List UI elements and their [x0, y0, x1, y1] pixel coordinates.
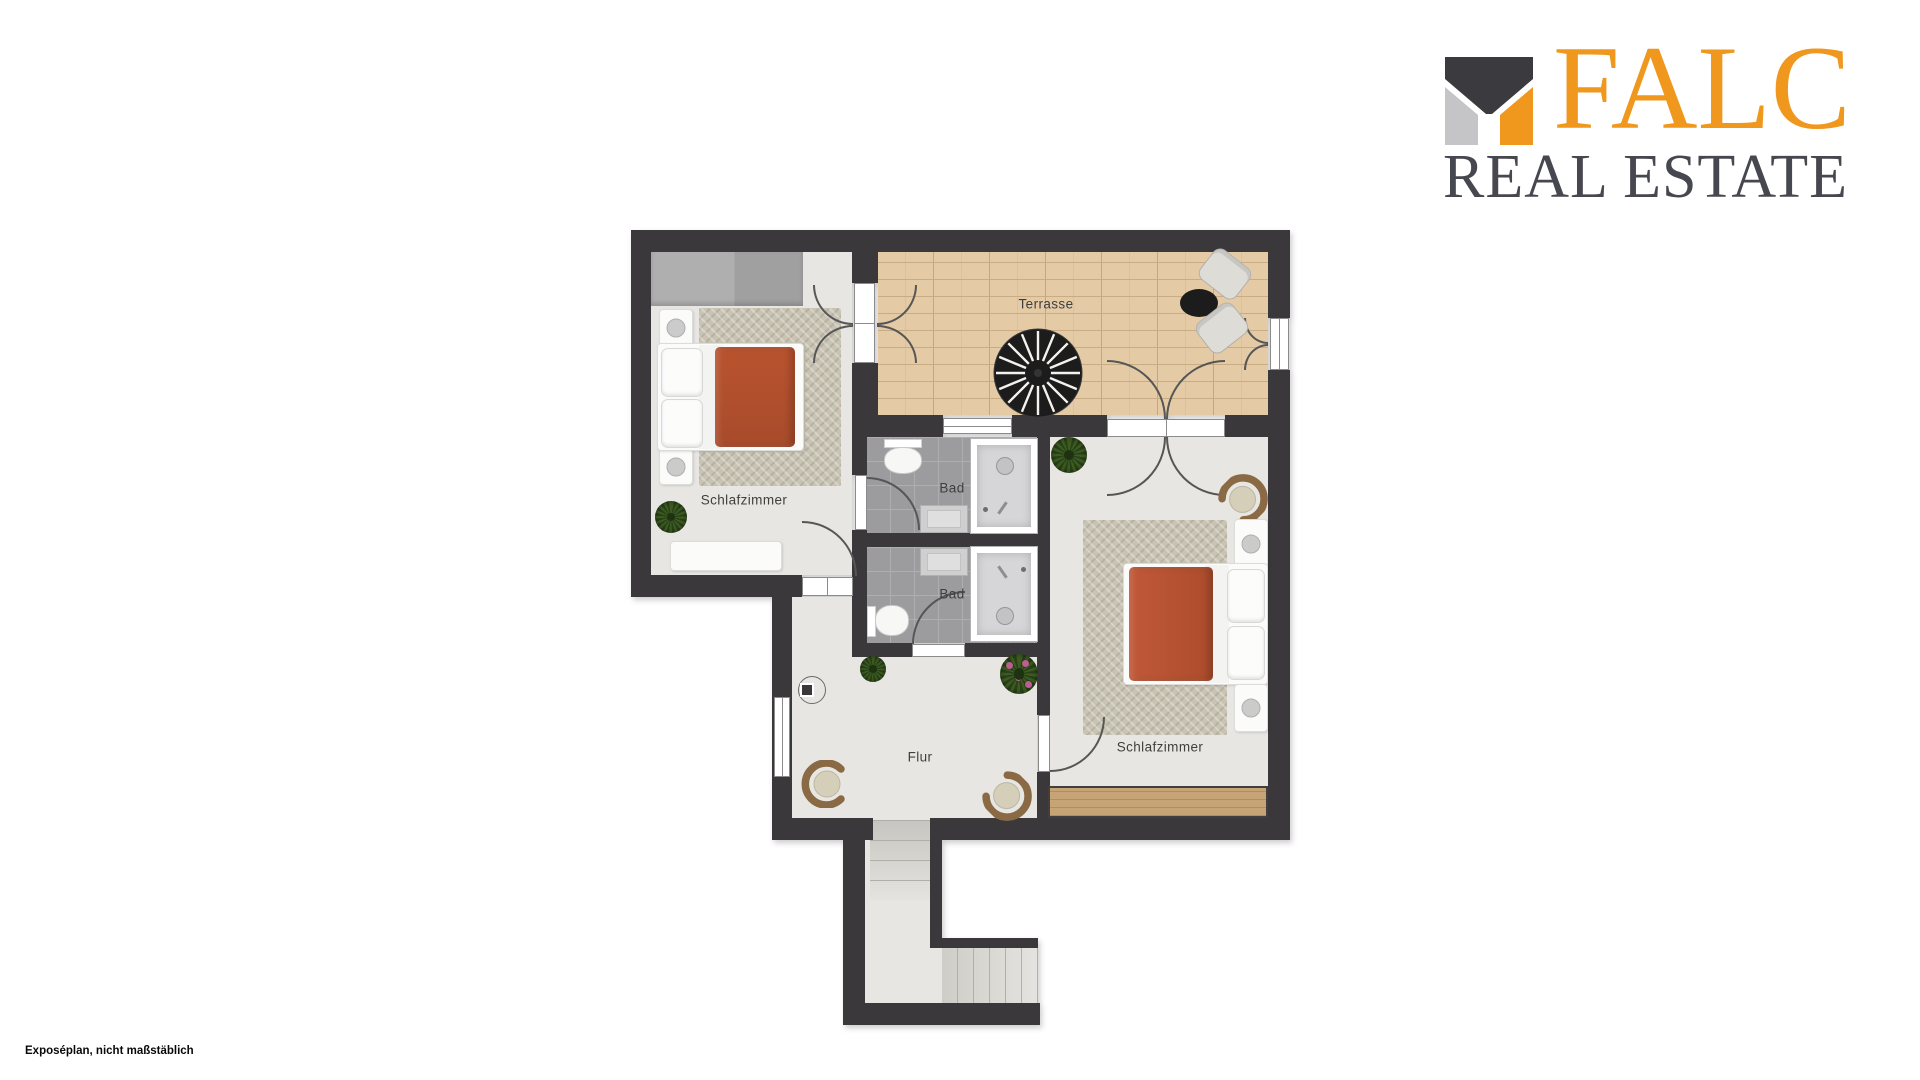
room-label-terrasse: Terrasse [1019, 297, 1074, 312]
wall-lamp-icon [800, 683, 814, 697]
flower [1015, 674, 1022, 681]
room-label-bad-2: Bad [939, 587, 964, 602]
wall [631, 230, 1290, 252]
wall [965, 643, 1050, 657]
nightstand [659, 448, 693, 485]
shower-head [996, 457, 1014, 475]
room-label-flur: Flur [908, 750, 933, 765]
sink [920, 548, 968, 576]
plant [1051, 437, 1087, 473]
room-flur-floor-notch [792, 597, 852, 657]
sink-basin [927, 510, 961, 528]
wall [843, 840, 865, 1025]
shower [971, 439, 1037, 533]
parasol [993, 328, 1083, 418]
shower-handle [997, 501, 1007, 514]
window-terrasse [1270, 318, 1289, 370]
bed-schlafzimmer-1 [657, 343, 804, 451]
nightstand [659, 309, 693, 346]
room-label-schlafzimmer-1: Schlafzimmer [701, 493, 788, 508]
flower [1006, 662, 1013, 669]
lamp [667, 457, 686, 476]
nightstand [1234, 519, 1268, 569]
shower-drain [983, 507, 988, 512]
wall [852, 252, 878, 283]
wardrobe [651, 252, 803, 306]
shower-drain [1021, 567, 1026, 572]
wall [1037, 437, 1050, 715]
toilet [884, 447, 922, 474]
plant [655, 501, 687, 533]
room-label-schlafzimmer-2: Schlafzimmer [1117, 740, 1204, 755]
wall [930, 840, 942, 940]
wall [852, 643, 912, 657]
window-bad-1 [943, 418, 1012, 434]
wall [631, 230, 651, 597]
nightstand [1234, 684, 1268, 732]
wall [852, 363, 878, 437]
wall [1012, 415, 1107, 437]
duvet [1129, 567, 1213, 681]
room-label-bad-1: Bad [939, 481, 964, 496]
pillow [661, 348, 703, 397]
page: FALC REAL ESTATE [0, 0, 1920, 1080]
door-schlafzimmer-1-terrasse [854, 283, 875, 363]
disclaimer-note: Exposéplan, nicht maßstäblich [25, 1045, 194, 1057]
wood-deck-strip [1048, 786, 1268, 818]
duvet [715, 347, 795, 447]
lamp [1242, 699, 1261, 718]
bench [670, 541, 782, 571]
wall [1268, 252, 1290, 318]
wall [1268, 370, 1290, 840]
pillow [1227, 569, 1265, 623]
pillow [1227, 626, 1265, 680]
sink-basin [927, 553, 961, 571]
lamp [1242, 535, 1261, 554]
stairwell-turn-floor [930, 948, 942, 1003]
wall [878, 415, 943, 437]
flower [1022, 660, 1029, 667]
door-flur-schlafzimmer-1 [802, 577, 853, 596]
shower-handle [997, 565, 1007, 578]
door-terrasse-schlafzimmer-2 [1107, 419, 1225, 437]
wall [852, 437, 867, 475]
fan-chair [801, 760, 849, 808]
bed-schlafzimmer-2 [1123, 563, 1268, 685]
sink [920, 505, 968, 533]
flower [1025, 681, 1032, 688]
wall [852, 533, 1050, 547]
wall [772, 818, 873, 840]
pillow [661, 399, 703, 448]
floor-plan: Schlafzimmer Terrasse Bad Bad Flur Schla… [0, 0, 1920, 1080]
door-flur-bad-2 [912, 644, 965, 657]
shower-head [996, 607, 1014, 625]
window-flur [774, 697, 790, 777]
door-flur-schlafzimmer-2 [1038, 715, 1050, 772]
stairs-lower-flight [942, 948, 1038, 1003]
toilet [875, 605, 909, 636]
wall [930, 938, 1038, 948]
plant [860, 656, 886, 682]
lamp [667, 318, 686, 337]
shower [971, 547, 1037, 641]
wall [1037, 818, 1290, 840]
wall [930, 818, 1040, 840]
stairs-upper-flight [870, 820, 930, 900]
door-schlafzimmer-1-bad-1 [855, 475, 867, 530]
flower-plant [1000, 654, 1038, 694]
wall [843, 1003, 1040, 1025]
